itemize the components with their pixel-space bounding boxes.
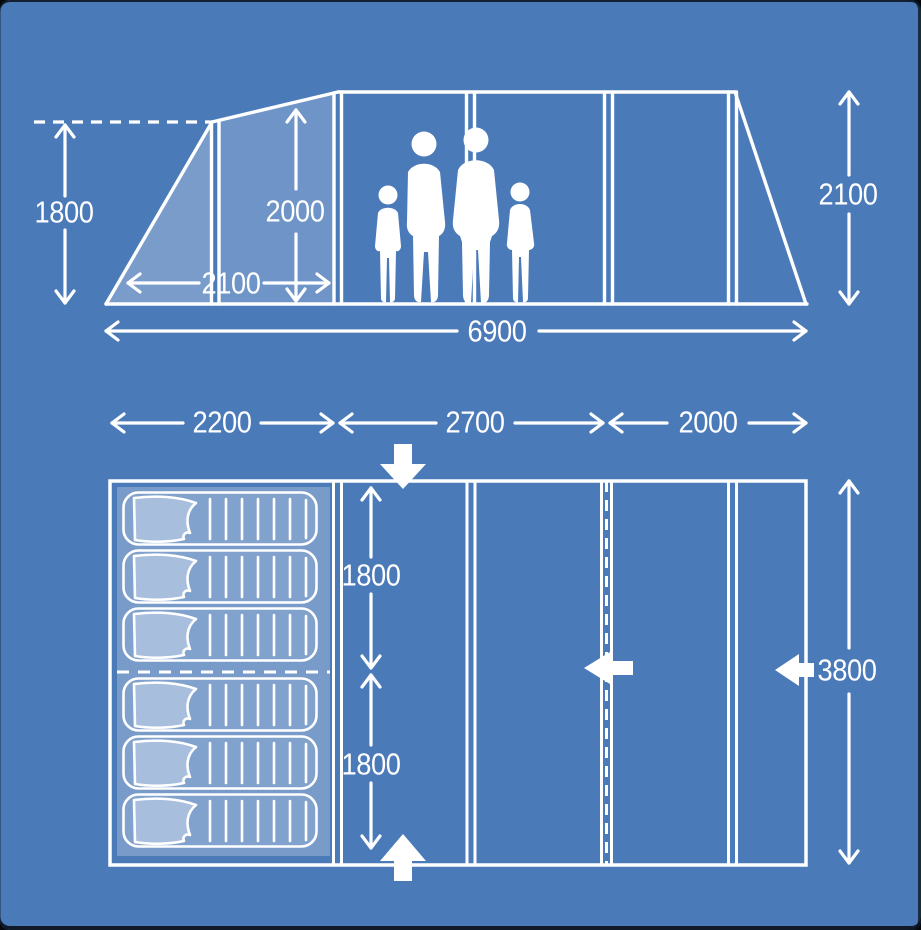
dimension-label-porch-depth: 2100 bbox=[202, 268, 261, 299]
dimension-label-bedroom-depth-bottom: 1800 bbox=[342, 749, 401, 780]
dimension-label-inner-height: 2000 bbox=[266, 196, 325, 227]
dimension-label-living-width: 2700 bbox=[446, 407, 505, 438]
person-silhouette-woman bbox=[407, 132, 445, 303]
entrance-arrow-left-icon bbox=[584, 652, 633, 684]
sleeping-bag-icon bbox=[124, 493, 317, 545]
sleeping-bag-icon bbox=[124, 737, 317, 789]
floor-plan-dividers bbox=[334, 481, 737, 865]
dimension-label-total-length: 6900 bbox=[468, 316, 527, 347]
floor-plan-view bbox=[110, 444, 814, 881]
dimension-label-bedroom-depth-top: 1800 bbox=[342, 560, 401, 591]
tent-dimensions-diagram: 1800200021006900210022002700200018001800… bbox=[0, 0, 921, 930]
dimension-label-front-width: 2000 bbox=[679, 407, 738, 438]
family-silhouette-icon bbox=[375, 128, 534, 304]
dimension-label-main-height: 2100 bbox=[819, 179, 878, 210]
sleeping-bag-icon bbox=[124, 609, 317, 661]
entrance-arrows bbox=[380, 444, 814, 881]
sleeping-bag-icon bbox=[124, 795, 317, 847]
person-silhouette-boy bbox=[507, 183, 534, 303]
entrance-arrow-up-icon bbox=[380, 834, 426, 881]
dimension-label-bedroom-width: 2200 bbox=[193, 407, 252, 438]
sleeping-bag-icon bbox=[124, 679, 317, 731]
dimension-label-total-depth: 3800 bbox=[818, 655, 877, 686]
entrance-arrow-right-door-icon bbox=[775, 654, 814, 686]
dimension-label-porch-height: 1800 bbox=[35, 197, 94, 228]
side-elevation-view bbox=[34, 92, 807, 304]
sleeping-bag-icon bbox=[124, 551, 317, 603]
person-silhouette-girl bbox=[375, 186, 401, 303]
blueprint-canvas bbox=[0, 0, 921, 930]
